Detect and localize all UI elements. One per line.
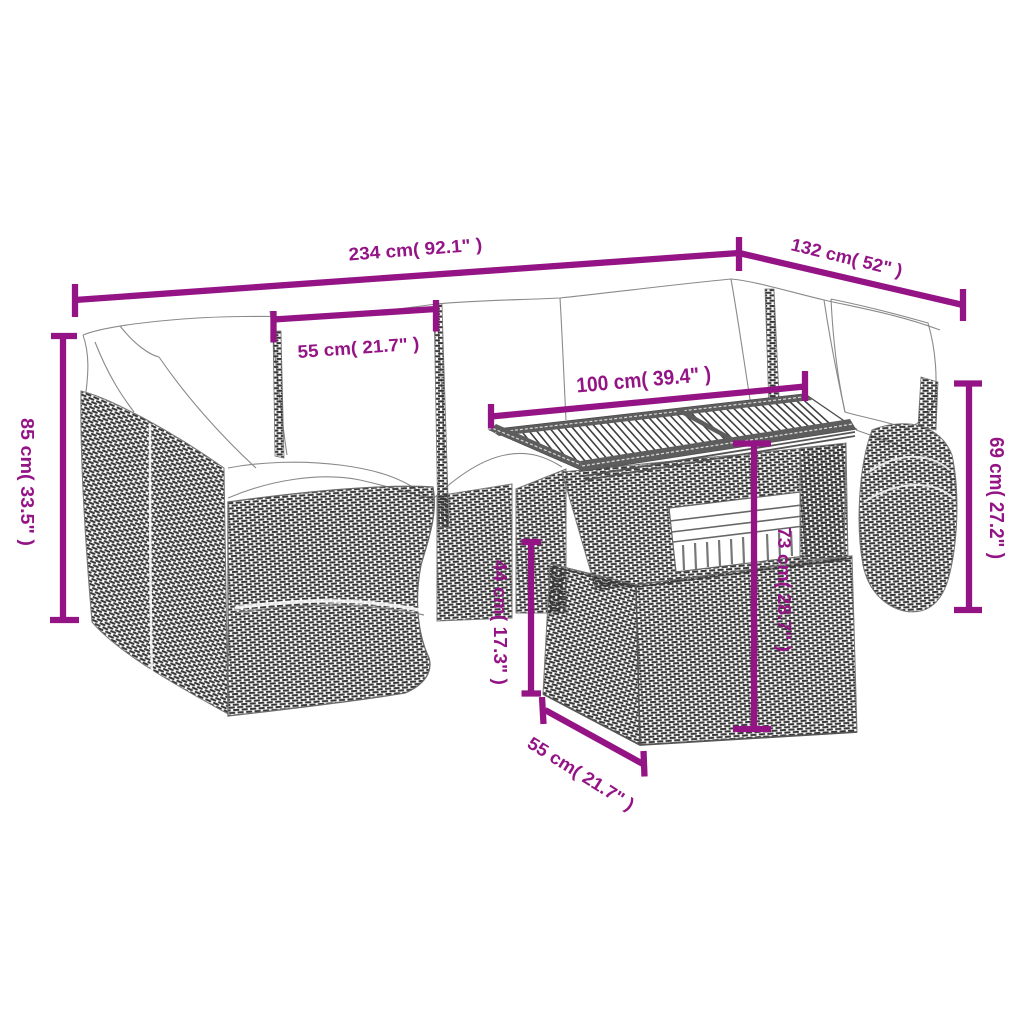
svg-text:44 cm( 17.3" ): 44 cm( 17.3" ): [490, 560, 510, 685]
svg-text:73 cm( 28.7" ): 73 cm( 28.7" ): [774, 527, 794, 652]
svg-text:85 cm( 33.5" ): 85 cm( 33.5" ): [17, 418, 37, 546]
svg-text:69 cm( 27.2" ): 69 cm( 27.2" ): [985, 437, 1007, 559]
